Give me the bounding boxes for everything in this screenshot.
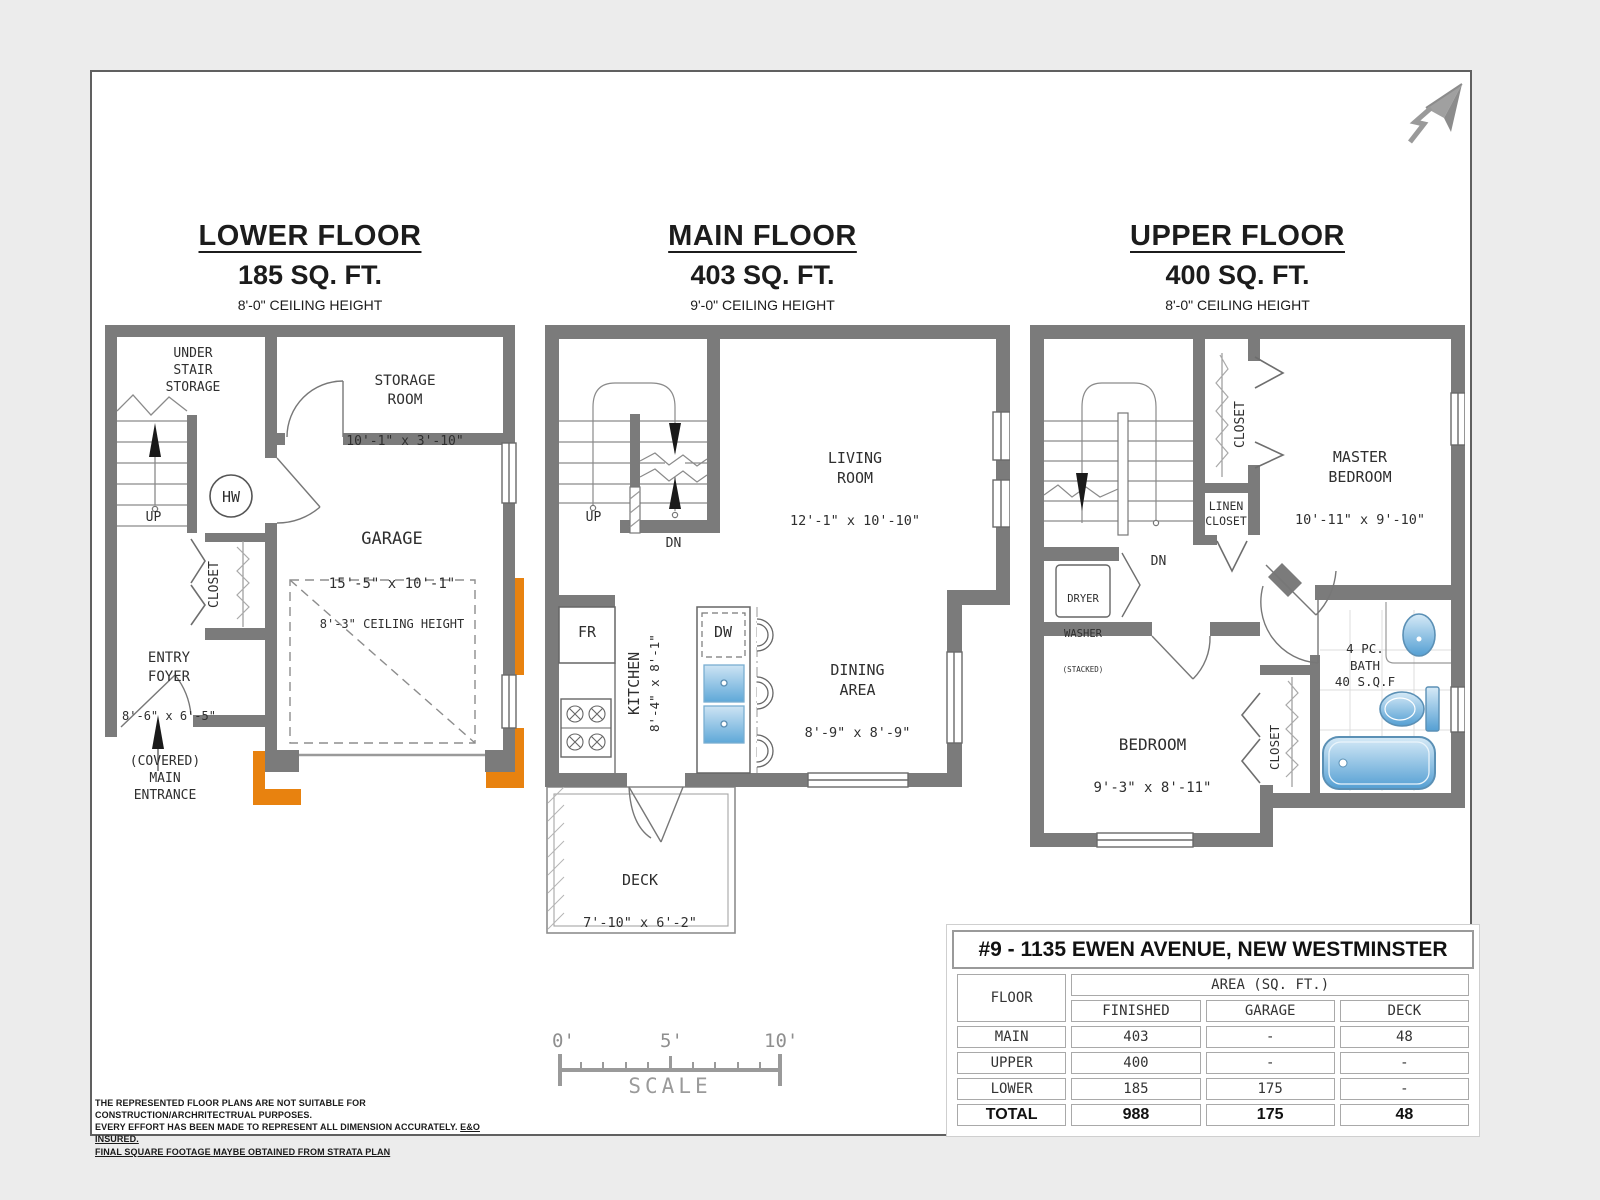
cell-finished: 988 — [1071, 1104, 1200, 1126]
bar-stools — [757, 619, 773, 767]
scale-bar: 0' 5' 10' SCALE — [552, 1030, 788, 1110]
area-group-header: AREA (SQ. FT.) — [1071, 974, 1469, 996]
cell-floor: MAIN — [957, 1026, 1066, 1048]
col-header-garage: GARAGE — [1206, 1000, 1335, 1022]
upper-floor-title-block: UPPER FLOOR 400 SQ. FT. 8'-0" CEILING HE… — [1020, 220, 1455, 313]
stair-up-label: UP — [571, 509, 616, 526]
floor-column-header: FLOOR — [957, 974, 1066, 1022]
cell-garage: 175 — [1206, 1104, 1335, 1126]
room-label-living-room: LIVING ROOM 12'-1" x 10'-10" — [755, 428, 955, 552]
cell-garage: 175 — [1206, 1078, 1335, 1100]
toilet-tank — [1426, 687, 1439, 731]
stairs — [1044, 383, 1193, 535]
table-total-row: TOTAL 988 175 48 — [957, 1104, 1469, 1126]
laundry-line: WASHER — [1057, 628, 1109, 642]
laundry-line: (STACKED) — [1057, 665, 1109, 675]
property-address: #9 - 1135 EWEN AVENUE, NEW WESTMINSTER — [952, 930, 1474, 969]
ceiling-height: 8'-0" CEILING HEIGHT — [105, 297, 515, 313]
cell-floor: LOWER — [957, 1078, 1066, 1100]
toilet-bowl — [1380, 692, 1424, 726]
lower-floor-plan: UNDER STAIR STORAGE STORAGE ROOM 10'-1" … — [105, 325, 525, 807]
col-header-finished: FINISHED — [1071, 1000, 1200, 1022]
room-name: DINING AREA — [780, 661, 935, 701]
doors — [1122, 553, 1336, 679]
cell-deck: - — [1340, 1052, 1469, 1074]
cell-finished: 400 — [1071, 1052, 1200, 1074]
scale-tick-label-10: 10' — [764, 1030, 798, 1052]
floor-title: LOWER FLOOR — [105, 220, 515, 253]
room-name: GARAGE — [292, 528, 492, 550]
floor-area: 400 SQ. FT. — [1020, 260, 1455, 291]
cell-garage: - — [1206, 1052, 1335, 1074]
room-dims: 7'-10" x 6'-2" — [560, 915, 720, 933]
room-label-entry-foyer: ENTRY FOYER 8'-6" x 6'-5" — [113, 628, 225, 746]
room-label-closet-bedroom: CLOSET — [1267, 703, 1285, 791]
cell-floor: TOTAL — [957, 1104, 1066, 1126]
stair-down-label: DN — [651, 535, 696, 552]
disclaimer-line-2-text: EVERY EFFORT HAS BEEN MADE TO REPRESENT … — [95, 1122, 458, 1132]
table-row: LOWER 185 175 - — [957, 1078, 1469, 1100]
disclaimer-text: THE REPRESENTED FLOOR PLANS ARE NOT SUIT… — [95, 1097, 525, 1158]
cell-deck: 48 — [1340, 1026, 1469, 1048]
room-label-storage-room: STORAGE ROOM 10'-1" x 3'-10" — [300, 351, 510, 472]
room-name: MASTER BEDROOM — [1265, 448, 1455, 488]
room-dims: 8'-6" x 6'-5" — [113, 709, 225, 725]
room-label-under-stair-storage: UNDER STAIR STORAGE — [123, 345, 263, 396]
room-label-linen-closet: LINEN CLOSET — [1190, 499, 1262, 529]
room-label-closet: CLOSET — [206, 539, 224, 631]
room-label-kitchen: KITCHEN — [625, 597, 645, 769]
laundry-label: DRYER WASHER (STACKED) — [1057, 572, 1109, 696]
disclaimer-line-3: FINAL SQUARE FOOTAGE MAYBE OBTAINED FROM… — [95, 1146, 525, 1158]
floor-title: UPPER FLOOR — [1020, 220, 1455, 253]
laundry-line: DRYER — [1057, 593, 1109, 607]
room-name: DECK — [560, 871, 720, 891]
scale-tick-label-0: 0' — [552, 1030, 575, 1052]
floor-area: 185 SQ. FT. — [105, 260, 515, 291]
fridge-label: FR — [559, 623, 615, 643]
floor-title: MAIN FLOOR — [530, 220, 995, 253]
table-row: MAIN 403 - 48 — [957, 1026, 1469, 1048]
disclaimer-line-2: EVERY EFFORT HAS BEEN MADE TO REPRESENT … — [95, 1121, 525, 1145]
room-dims: 10'-11" x 9'-10" — [1265, 512, 1455, 530]
stair-up-label: UP — [131, 509, 176, 526]
table-header-row: FLOOR AREA (SQ. FT.) — [957, 974, 1469, 996]
main-entrance-label: (COVERED) MAIN ENTRANCE — [105, 753, 225, 804]
main-floor-plan: UP DN LIVING ROOM 12'-1" x 10'-10" FR KI… — [545, 325, 1010, 937]
cell-finished: 403 — [1071, 1026, 1200, 1048]
room-name: STORAGE ROOM — [300, 372, 510, 410]
cell-floor: UPPER — [957, 1052, 1066, 1074]
hot-water-label: HW — [209, 488, 253, 508]
room-label-dining-area: DINING AREA 8'-9" x 8'-9" — [780, 640, 935, 764]
upper-floor-plan: DN CLOSET MASTER BEDROOM 10'-11" x 9'-10… — [1030, 325, 1465, 850]
room-dims: 9'-3" x 8'-11" — [1070, 779, 1235, 797]
floor-area: 403 SQ. FT. — [530, 260, 995, 291]
col-header-deck: DECK — [1340, 1000, 1469, 1022]
scale-caption: SCALE — [552, 1074, 788, 1098]
main-floor-title-block: MAIN FLOOR 403 SQ. FT. 9'-0" CEILING HEI… — [530, 220, 995, 313]
room-dims: 10'-1" x 3'-10" — [300, 433, 510, 450]
dishwasher-label: DW — [699, 623, 747, 643]
area-summary-table: FLOOR AREA (SQ. FT.) FINISHED GARAGE DEC… — [952, 970, 1474, 1130]
room-name: BEDROOM — [1070, 734, 1235, 755]
stair-down-label: DN — [1136, 553, 1181, 570]
cell-garage: - — [1206, 1026, 1335, 1048]
room-label-deck: DECK 7'-10" x 6'-2" — [560, 850, 720, 954]
lower-floor-title-block: LOWER FLOOR 185 SQ. FT. 8'-0" CEILING HE… — [105, 220, 515, 313]
cell-deck: 48 — [1340, 1104, 1469, 1126]
area-summary-panel: #9 - 1135 EWEN AVENUE, NEW WESTMINSTER F… — [946, 924, 1480, 1137]
room-name: LIVING ROOM — [755, 449, 955, 489]
cell-finished: 185 — [1071, 1078, 1200, 1100]
room-label-bedroom: BEDROOM 9'-3" x 8'-11" — [1070, 713, 1235, 819]
room-name: ENTRY FOYER — [113, 649, 225, 686]
cell-deck: - — [1340, 1078, 1469, 1100]
table-row: UPPER 400 - - — [957, 1052, 1469, 1074]
north-arrow-icon — [1398, 80, 1470, 168]
room-label-garage: GARAGE 15'-5" x 10'-1" 8'-3" CEILING HEI… — [292, 507, 492, 654]
room-dims: 12'-1" x 10'-10" — [755, 513, 955, 531]
room-label-closet-master: CLOSET — [1232, 377, 1250, 472]
ceiling-height: 8'-0" CEILING HEIGHT — [1020, 297, 1455, 313]
room-dims: 15'-5" x 10'-1" — [292, 575, 492, 593]
floorplan-sheet-page: { "floors": { "lower": { "title": "LOWER… — [0, 0, 1600, 1200]
room-note: 8'-3" CEILING HEIGHT — [292, 617, 492, 633]
room-dims: 8'-9" x 8'-9" — [780, 725, 935, 743]
bath-fixtures — [1323, 602, 1451, 789]
room-label-bath: 4 PC. BATH 40 S.Q.F — [1322, 641, 1408, 691]
room-label-master-bedroom: MASTER BEDROOM 10'-11" x 9'-10" — [1265, 427, 1455, 551]
ceiling-height: 9'-0" CEILING HEIGHT — [530, 297, 995, 313]
kitchen-dims: 8'-4" x 8'-1" — [647, 593, 665, 773]
disclaimer-line-1: THE REPRESENTED FLOOR PLANS ARE NOT SUIT… — [95, 1097, 525, 1121]
scale-tick-label-5: 5' — [660, 1030, 683, 1052]
